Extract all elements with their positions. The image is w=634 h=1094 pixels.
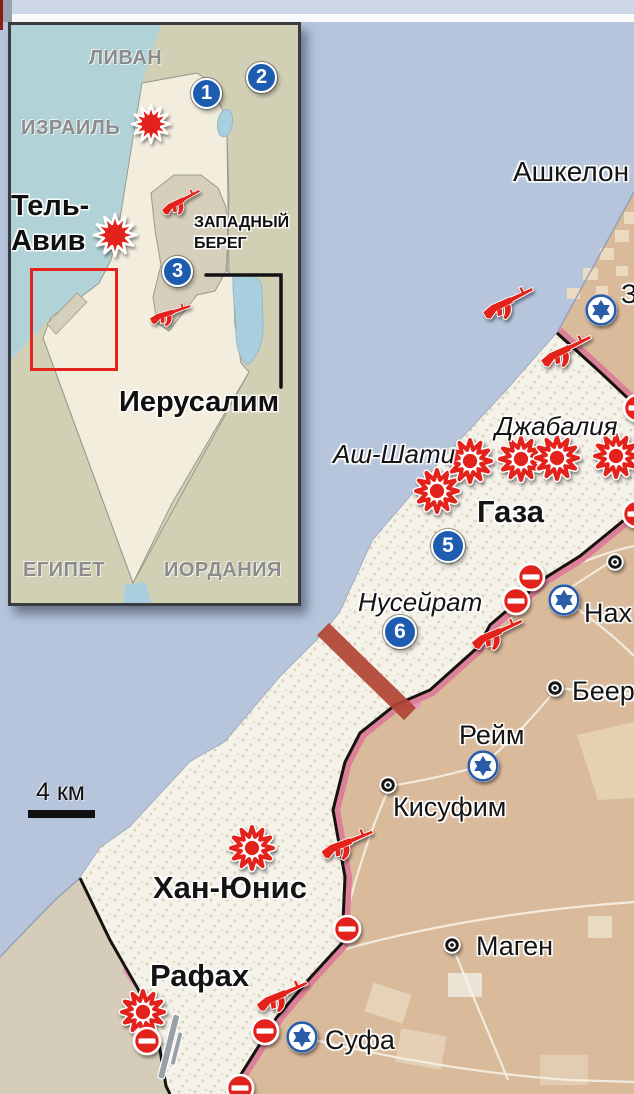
- label-zikim-partial: З: [621, 280, 634, 308]
- label-jerusalem: Иерусалим: [119, 386, 279, 419]
- label-lebanon: ЛИВАН: [89, 47, 162, 70]
- closed-crossing-icon: [503, 588, 529, 614]
- star-of-david-icon: [548, 584, 580, 616]
- label-jabalia: Джабалия: [495, 413, 617, 440]
- town-dot-icon: [546, 679, 563, 696]
- label-tel-aviv: Тель- Авив: [11, 189, 89, 259]
- closed-crossing-icon: [252, 1018, 278, 1044]
- top-white-strip: [0, 14, 634, 22]
- closed-crossing-icon: [518, 564, 544, 590]
- numbered-marker-1: 1: [191, 78, 222, 109]
- label-sufa: Суфа: [325, 1026, 395, 1054]
- label-kisufim: Кисуфим: [393, 793, 506, 821]
- label-nuseirat: Нусейрат: [358, 589, 482, 616]
- label-israel: ИЗРАИЛЬ: [21, 117, 120, 140]
- numbered-marker-2: 2: [246, 62, 277, 93]
- star-of-david-icon: [286, 1021, 318, 1053]
- town-dot-icon: [443, 936, 460, 953]
- numbered-marker-3: 3: [162, 256, 193, 287]
- label-ashkelon: Ашкелон: [513, 157, 629, 186]
- label-khan-yunis: Хан-Юнис: [153, 872, 307, 905]
- gaza-highlight-frame: [30, 268, 118, 371]
- label-rafah: Рафах: [150, 960, 249, 993]
- numbered-marker-6: 6: [383, 615, 417, 649]
- label-beeri-partial: Беер: [572, 677, 634, 705]
- inset-map-israel: ЛИВАН ИЗРАИЛЬ Тель- Авив ЗАПАДНЫЙ БЕРЕГ …: [8, 22, 301, 606]
- town-dot-icon: [606, 553, 623, 570]
- gaza-map-infographic: Ашкелон З Джабалия Аш-Шати Газа Нусейрат…: [0, 0, 634, 1094]
- label-jordan: ИОРДАНИЯ: [164, 559, 282, 582]
- light-field-patch: [588, 916, 612, 938]
- numbered-marker-5: 5: [431, 529, 465, 563]
- scale-bar: [28, 810, 95, 818]
- label-nahal-partial: Нах: [584, 599, 632, 627]
- star-of-david-icon: [585, 294, 617, 326]
- top-band: [0, 0, 634, 14]
- star-of-david-icon: [467, 750, 499, 782]
- closed-crossing-icon: [134, 1028, 160, 1054]
- closed-crossing-icon: [334, 916, 360, 942]
- closed-crossing-icon: [227, 1075, 253, 1094]
- scale-label: 4 км: [36, 778, 85, 807]
- label-gaza-city: Газа: [477, 496, 544, 529]
- left-edge-gray-sliver: [3, 0, 12, 22]
- label-west-bank: ЗАПАДНЫЙ БЕРЕГ: [194, 213, 289, 255]
- label-egypt: ЕГИПЕТ: [23, 559, 105, 582]
- label-ash-shati: Аш-Шати: [333, 441, 455, 468]
- label-reim: Рейм: [459, 721, 524, 749]
- label-magen: Маген: [476, 932, 553, 960]
